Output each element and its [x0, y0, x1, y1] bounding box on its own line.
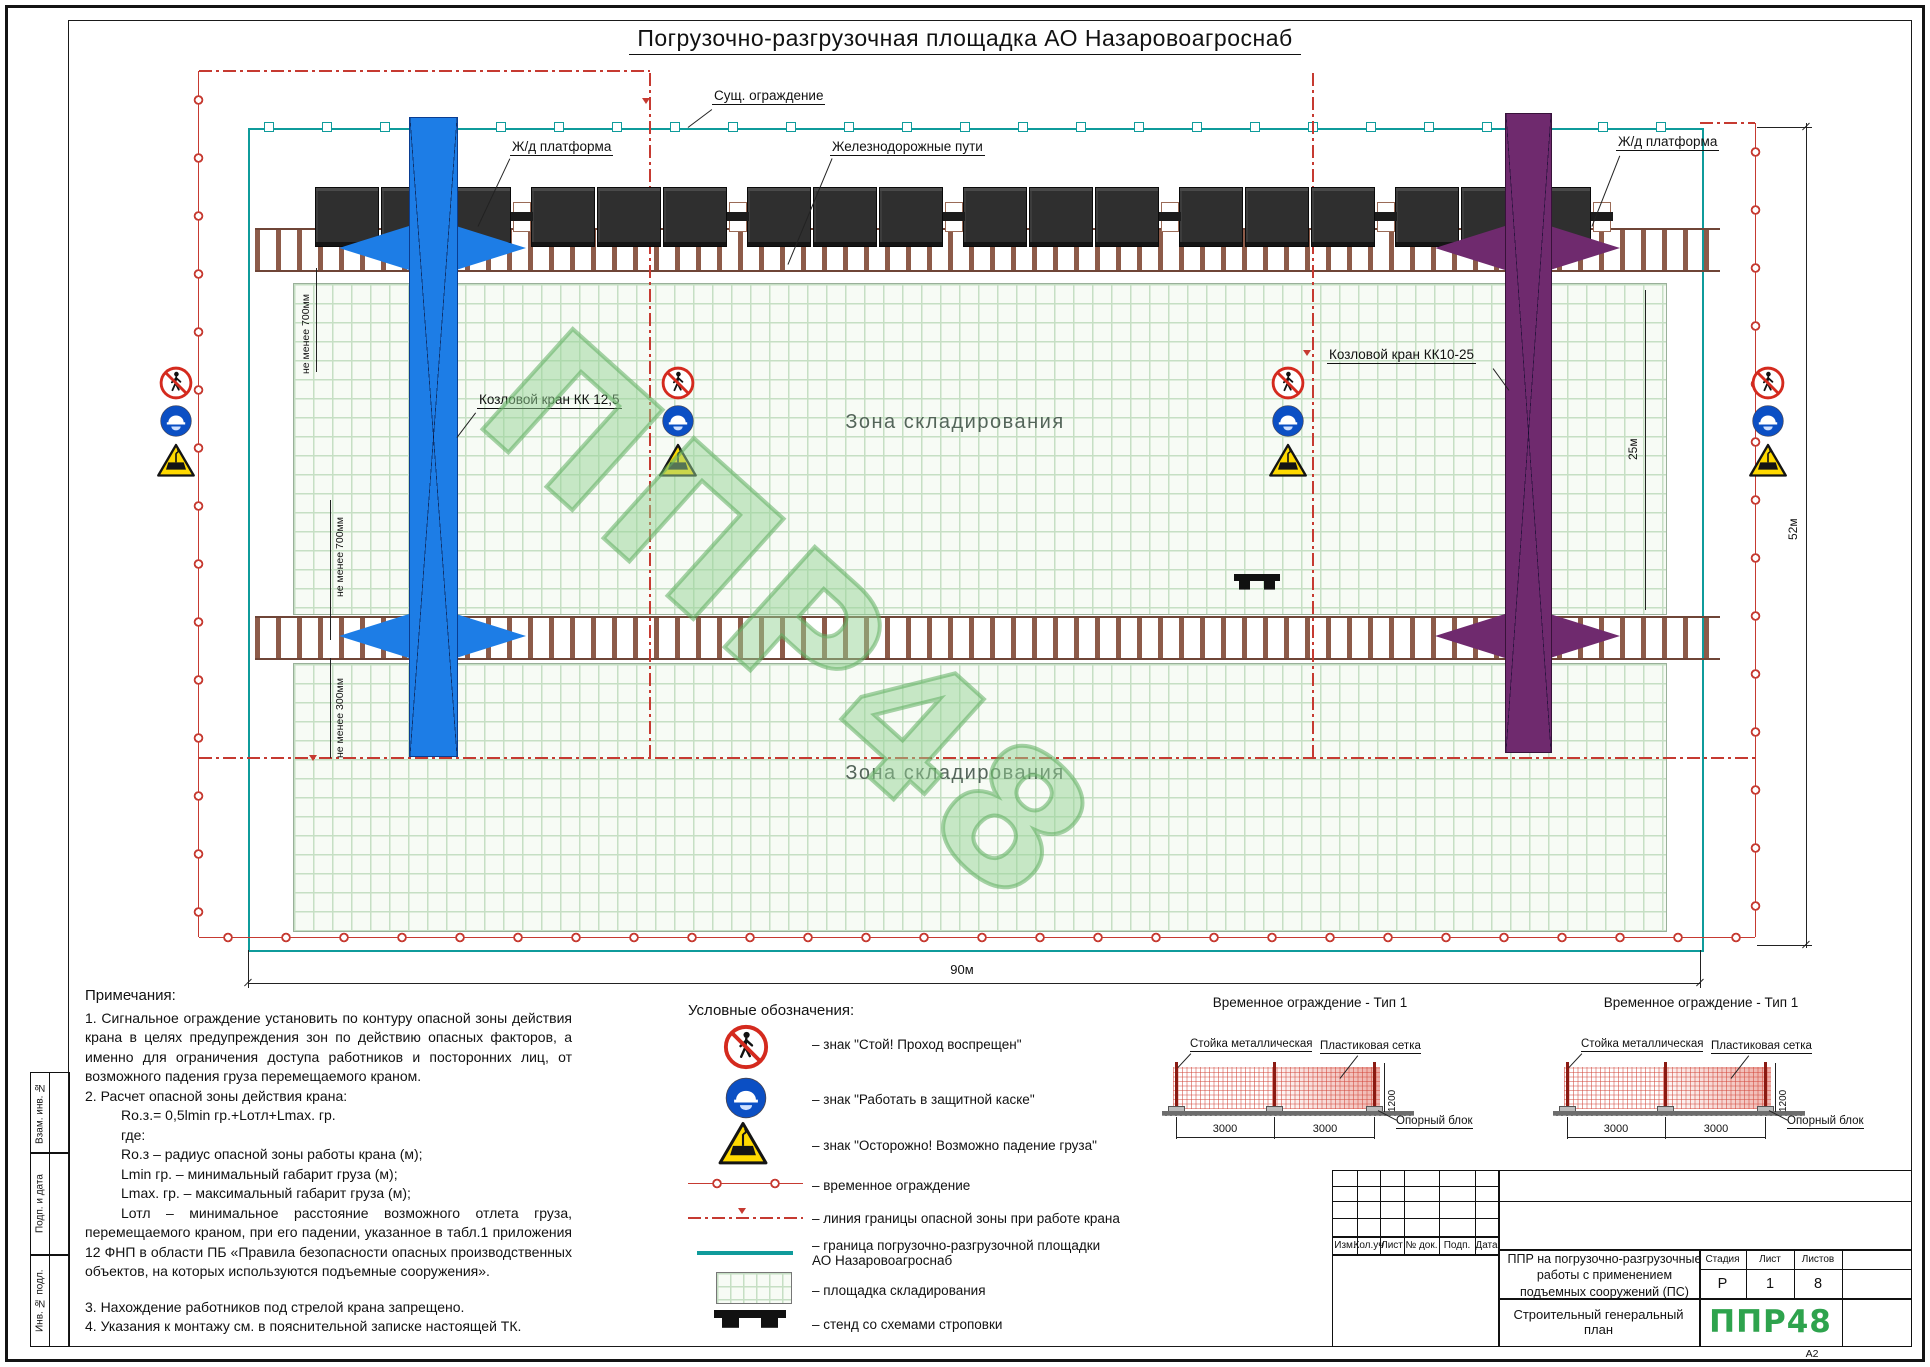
fence-post-square — [1482, 122, 1492, 132]
railway-wagon — [1095, 187, 1159, 247]
no-pedestrian-sign-icon — [1271, 366, 1305, 400]
dimension-ext-line — [1274, 1117, 1275, 1139]
legend-item: – знак "Работать в защитной каске" — [812, 1092, 1035, 1107]
strip-divider — [49, 1073, 50, 1153]
crane-rail-arrow — [1550, 614, 1620, 658]
title-block-line — [1333, 1254, 1498, 1256]
dimension-90m: 90м — [925, 962, 999, 977]
railway-wagon — [1245, 187, 1309, 247]
title-block-line — [1498, 1201, 1911, 1202]
no-pedestrian-sign-icon — [159, 366, 193, 400]
red-marker-icon — [1303, 350, 1311, 356]
leader-line — [1569, 1053, 1583, 1068]
rev-header: Лист — [1380, 1236, 1404, 1254]
red-marker-icon — [642, 98, 650, 104]
fence-detail-title: Временное ограждение - Тип 1 — [1160, 995, 1460, 1010]
temp-fence-detail-2: Временное ограждение - Тип 1 3000 3000 1… — [1551, 995, 1851, 1150]
dimension-ext-line — [1567, 1117, 1568, 1139]
dimension-ext-line — [1665, 1117, 1666, 1139]
wagon-coupler — [729, 202, 747, 232]
fence-post — [1764, 1062, 1767, 1112]
dimension-min700-b: не менее 700мм — [334, 505, 346, 597]
legend-item: – знак "Стой! Проход воспрещен" — [812, 1037, 1022, 1052]
fence-post-square — [786, 122, 796, 132]
crane-rail-arrow — [1550, 226, 1620, 270]
strip-box-inv: Инв. № подл. — [30, 1254, 70, 1347]
fence-post-square — [1134, 122, 1144, 132]
sign-cluster-mid-right — [1268, 366, 1308, 479]
dimension-min700-a: не менее 700мм — [300, 282, 312, 374]
wagon-coupler — [945, 202, 963, 232]
strip-box-vzam: Взам. инв. № — [30, 1072, 70, 1154]
fence-dim-3000: 3000 — [1691, 1123, 1741, 1135]
sheet-value: 1 — [1746, 1269, 1794, 1298]
fence-dim-3000: 3000 — [1591, 1123, 1641, 1135]
railway-wagon — [963, 187, 1027, 247]
ground-line — [1162, 1111, 1414, 1116]
fence-post-square — [960, 122, 970, 132]
legend-item: – стенд со схемами строповки — [812, 1317, 1002, 1332]
railway-wagon — [1029, 187, 1093, 247]
sheets-label: Листов — [1794, 1249, 1842, 1269]
wagon-coupler — [1377, 202, 1395, 232]
wagon-group — [747, 186, 963, 248]
title-block-line — [1842, 1249, 1843, 1346]
danger-zone-line-top-right — [1700, 122, 1755, 124]
ppr48-logo: ППР48 — [1699, 1298, 1842, 1346]
note-line: Lmin гр. – минимальный габарит груза (м)… — [85, 1165, 572, 1185]
danger-zone-line-left — [649, 71, 651, 758]
falling-load-sign-icon — [1268, 442, 1308, 479]
crane-rail-arrow — [456, 226, 526, 270]
slinging-stand-symbol — [714, 1310, 786, 1328]
fence-post — [1373, 1062, 1376, 1112]
hardhat-sign-icon — [1271, 404, 1305, 438]
fence-post — [1566, 1062, 1569, 1112]
dimension-52m: 52м — [1786, 500, 1800, 540]
note-line: Lотл – минимальное расстояние возможного… — [85, 1204, 572, 1282]
strip-box-podp: Подп. и дата — [30, 1152, 70, 1256]
fence-post-square — [496, 122, 506, 132]
dimension-ext-line — [1765, 1117, 1766, 1139]
hardhat-sign-icon — [159, 404, 193, 438]
hardhat-sign-icon — [724, 1076, 768, 1120]
fence-post-label: Стойка металлическая — [1581, 1038, 1703, 1052]
fence-mesh — [1173, 1067, 1380, 1109]
notes-heading: Примечания: — [85, 986, 572, 1006]
fence-post-square — [322, 122, 332, 132]
railway-wagon — [597, 187, 661, 247]
note-line: 2. Расчет опасной зоны действия крана: — [85, 1087, 572, 1107]
storage-zone-upper-label: Зона складирования — [830, 411, 1080, 434]
callout-rail-platform-right: Ж/д платформа — [1616, 134, 1719, 151]
temp-fence-detail-1: Временное ограждение - Тип 1 3000 3000 1… — [1160, 995, 1460, 1150]
dimension-line — [1384, 1063, 1385, 1112]
stage-value: Р — [1699, 1269, 1746, 1298]
storage-zone-lower-label: Зона складирования — [830, 762, 1080, 785]
fence-post — [1175, 1062, 1178, 1112]
no-pedestrian-sign-icon — [723, 1024, 769, 1070]
stage-label: Стадия — [1699, 1249, 1746, 1269]
fence-post-square — [1250, 122, 1260, 132]
red-marker-icon — [738, 1208, 746, 1214]
note-line: Ro.з.= 0,5lmin гр.+Lотл+Lmax. гр. — [85, 1106, 572, 1126]
fence-post-square — [844, 122, 854, 132]
dimension-25m: 25м — [1626, 420, 1640, 460]
note-line: Ro.з – радиус опасной зоны работы крана … — [85, 1145, 572, 1165]
sheets-value: 8 — [1794, 1269, 1842, 1298]
danger-zone-line-right — [1312, 71, 1314, 758]
signal-fence-left — [193, 71, 204, 937]
note-line: 3. Нахождение работников под стрелой кра… — [85, 1298, 572, 1318]
sheet-format-label: А2 — [1782, 1348, 1842, 1360]
fence-mesh-label: Пластиковая сетка — [1320, 1040, 1421, 1054]
page-title: Погрузочно-разгрузочная площадка АО Наза… — [0, 25, 1930, 52]
fence-post-square — [1366, 122, 1376, 132]
note-line: Lmax. гр. – максимальный габарит груза (… — [85, 1184, 572, 1204]
notes-block: Примечания: 1. Сигнальное ограждение уст… — [85, 986, 572, 1337]
note-line: 1. Сигнальное ограждение установить по к… — [85, 1009, 572, 1087]
drawing-name: Строительный генеральный план — [1498, 1298, 1699, 1346]
site-fence-posts — [248, 122, 1700, 135]
railway-wagon — [747, 187, 811, 247]
leader-line — [1178, 1053, 1192, 1068]
strip-label: Подп. и дата — [31, 1153, 49, 1255]
fence-post — [1273, 1062, 1276, 1112]
hardhat-sign-icon — [661, 404, 695, 438]
legend-item: – граница погрузочно-разгрузочной площад… — [812, 1238, 1122, 1268]
callout-railways: Железнодорожные пути — [830, 139, 985, 156]
ground-line — [1553, 1111, 1805, 1116]
signal-fence-bottom — [199, 932, 1755, 943]
callout-existing-fence: Сущ. ограждение — [712, 88, 825, 105]
fence-post-square — [380, 122, 390, 132]
document-title: ППР на погрузочно-разгрузочные работы с … — [1498, 1249, 1711, 1302]
dimension-line — [330, 658, 331, 758]
falling-load-sign-icon — [717, 1120, 769, 1167]
storage-area-symbol — [716, 1272, 792, 1304]
fence-post-square — [1598, 122, 1608, 132]
wagon-group — [1179, 186, 1395, 248]
legend-item: – площадка складирования — [812, 1283, 986, 1298]
strip-divider — [49, 1153, 50, 1255]
rev-header: № док. — [1404, 1236, 1439, 1254]
temp-fence-symbol — [688, 1178, 803, 1189]
crane-rail-arrow — [1435, 614, 1505, 658]
dimension-line — [248, 983, 1700, 984]
rev-header: Кол.уч — [1357, 1236, 1380, 1254]
crane-rail-arrow — [1435, 226, 1505, 270]
no-pedestrian-sign-icon — [1751, 366, 1785, 400]
legend-item: – знак "Осторожно! Возможно падение груз… — [812, 1138, 1097, 1153]
fence-post-square — [1076, 122, 1086, 132]
wagon-group — [531, 186, 747, 248]
railway-wagon — [663, 187, 727, 247]
fence-dim-3000: 3000 — [1200, 1123, 1250, 1135]
fence-post — [1664, 1062, 1667, 1112]
fence-post-square — [612, 122, 622, 132]
dimension-line — [1645, 290, 1646, 610]
crane-rail-arrow — [339, 614, 409, 658]
wagon-coupler — [1161, 202, 1179, 232]
dimension-line — [1775, 1063, 1776, 1112]
fence-dim-1200: 1200 — [1387, 1067, 1398, 1112]
fence-detail-title: Временное ограждение - Тип 1 — [1551, 995, 1851, 1010]
drawing-sheet: Погрузочно-разгрузочная площадка АО Наза… — [0, 0, 1930, 1367]
railway-wagon — [813, 187, 877, 247]
title-block: Изм. Кол.уч Лист № док. Подп. Дата ППР н… — [1332, 1170, 1912, 1347]
dimension-line — [1567, 1137, 1765, 1138]
danger-line-symbol — [688, 1217, 803, 1219]
callout-crane-right: Козловой кран КК10-25 — [1327, 347, 1476, 364]
danger-zone-line-top — [199, 70, 650, 72]
fence-post-square — [1424, 122, 1434, 132]
crane-rail-arrow — [339, 226, 409, 270]
gantry-crane-kk10-25 — [1505, 113, 1552, 753]
fence-post-square — [902, 122, 912, 132]
fence-post-square — [1018, 122, 1028, 132]
crane-rail-arrow — [456, 614, 526, 658]
callout-crane-left: Козловой кран КК 12,5 — [477, 392, 622, 409]
wagon-group — [963, 186, 1179, 248]
slinging-stand-symbol — [1234, 574, 1280, 590]
callout-rail-platform-left: Ж/д платформа — [510, 139, 613, 156]
falling-load-sign-icon — [1748, 442, 1788, 479]
dimension-ext-line — [1176, 1117, 1177, 1139]
falling-load-sign-icon — [658, 442, 698, 479]
rev-header: Подп. — [1439, 1236, 1475, 1254]
sign-cluster-right — [1748, 366, 1788, 479]
danger-zone-line-bottom — [199, 757, 1755, 759]
strip-label: Взам. инв. № — [31, 1073, 49, 1153]
red-marker-icon — [309, 755, 317, 761]
signal-fence-right — [1750, 123, 1761, 937]
gantry-crane-kk12 — [409, 117, 458, 757]
railway-wagon — [1311, 187, 1375, 247]
support-block-label: Опорный блок — [1396, 1115, 1473, 1129]
note-line: 4. Указания к монтажу см. в пояснительно… — [85, 1317, 572, 1337]
hardhat-sign-icon — [1751, 404, 1785, 438]
railway-wagon — [879, 187, 943, 247]
note-line: где: — [85, 1126, 572, 1146]
fence-post-square — [670, 122, 680, 132]
sheet-label: Лист — [1746, 1249, 1794, 1269]
dimension-ext-line — [1374, 1117, 1375, 1139]
support-block-label: Опорный блок — [1787, 1115, 1864, 1129]
fence-dim-3000: 3000 — [1300, 1123, 1350, 1135]
dimension-line — [1806, 123, 1807, 948]
falling-load-sign-icon — [156, 442, 196, 479]
sign-cluster-mid-left — [658, 366, 698, 479]
dimension-line — [316, 268, 317, 372]
legend-heading: Условные обозначения: — [688, 1002, 854, 1019]
dimension-line — [1176, 1137, 1374, 1138]
legend-item: – линия границы опасной зоны при работе … — [812, 1211, 1120, 1226]
railway-wagon — [531, 187, 595, 247]
fence-post-square — [1192, 122, 1202, 132]
fence-dim-1200: 1200 — [1778, 1067, 1789, 1112]
site-boundary-symbol — [697, 1251, 793, 1255]
legend-item: – временное ограждение — [812, 1178, 970, 1193]
no-pedestrian-sign-icon — [661, 366, 695, 400]
fence-post-square — [264, 122, 274, 132]
dimension-line — [330, 500, 331, 640]
fence-post-square — [554, 122, 564, 132]
rev-header: Дата — [1475, 1236, 1498, 1254]
fence-post-label: Стойка металлическая — [1190, 1038, 1312, 1052]
strip-label: Инв. № подл. — [31, 1255, 49, 1346]
strip-divider — [49, 1255, 50, 1346]
railway-wagon — [1179, 187, 1243, 247]
dimension-min300: не менее 300мм — [334, 666, 346, 758]
fence-post-square — [1656, 122, 1666, 132]
sign-cluster-left — [156, 366, 196, 479]
fence-post-square — [728, 122, 738, 132]
fence-mesh — [1564, 1067, 1771, 1109]
fence-mesh-label: Пластиковая сетка — [1711, 1040, 1812, 1054]
